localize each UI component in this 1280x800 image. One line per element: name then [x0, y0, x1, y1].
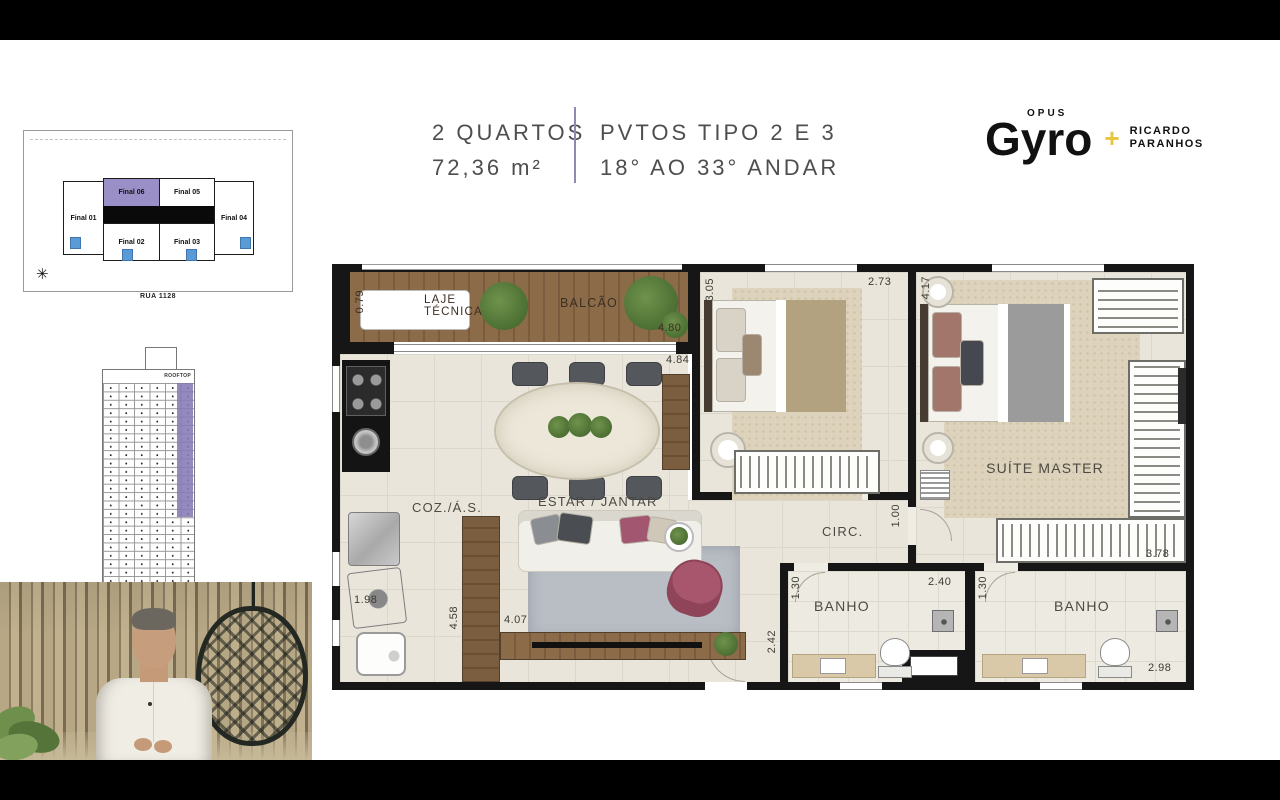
tv — [532, 642, 702, 648]
circ-label: CIRC. — [822, 524, 863, 539]
tv-partition — [462, 516, 500, 682]
keyplan-diagram: Final 01 Final 06 Final 05 Final 02 Fina… — [23, 130, 293, 292]
console-plant — [714, 632, 738, 656]
dim-circ-width: 1.00 — [890, 504, 902, 527]
dim-banho1-width: 2.40 — [928, 576, 951, 588]
bathroom2-shower-head — [1156, 610, 1178, 632]
fridge — [348, 512, 400, 566]
bathroom2-window — [1040, 682, 1082, 690]
unit-type-label: 2 QUARTOS — [432, 115, 585, 150]
partner-name-line1: RICARDO — [1130, 125, 1204, 138]
presenter-hand-left — [134, 738, 152, 751]
balcony-railing — [362, 264, 682, 270]
bed-blanket — [776, 300, 846, 412]
kitchen-sink — [352, 428, 380, 456]
estar-jantar-label: ESTAR / JANTAR — [538, 494, 658, 509]
bathroom1-door-opening — [794, 563, 828, 571]
presenter-video[interactable] — [0, 582, 312, 760]
balcony-marker-final03 — [186, 249, 197, 261]
dim-suite-width: 3.78 — [1146, 548, 1169, 560]
bathroom1-sink — [820, 658, 846, 674]
dim-suite-depth: 4.17 — [920, 276, 932, 299]
entrance-door-opening — [705, 682, 747, 690]
presenter-hand-right — [154, 740, 172, 753]
dim-living-width: 4.84 — [666, 354, 689, 366]
bathroom2-door-opening — [984, 563, 1018, 571]
lapel-mic — [148, 702, 152, 706]
bathroom2-toilet-tank — [1098, 666, 1132, 678]
keyplan-core — [103, 206, 215, 224]
wall-balcony-sill-left — [332, 342, 394, 354]
tower-highlight-column — [177, 383, 193, 517]
dining-chair — [512, 362, 548, 386]
banho1-label: BANHO — [814, 598, 870, 614]
service-window-2 — [332, 620, 340, 646]
logo-plus-icon: + — [1104, 123, 1119, 154]
dim-living-length: 4.07 — [504, 614, 527, 626]
suite-nightstand-bottom — [922, 432, 954, 464]
bathroom2-sink — [1022, 658, 1048, 674]
suite-deco-bench — [920, 470, 950, 500]
balcao-label: BALCÃO — [560, 296, 618, 310]
banho2-label: BANHO — [1054, 598, 1110, 614]
suite-accent-pillow — [960, 340, 984, 386]
wall-bedroom1-left — [692, 350, 700, 500]
floors-label: 18° AO 33° ANDAR — [600, 150, 839, 185]
sideboard — [662, 374, 690, 470]
egg-chair — [196, 606, 308, 746]
balcony-marker-final01 — [70, 237, 81, 249]
dim-banho2-depth: 1.30 — [977, 576, 989, 599]
service-window-1 — [332, 552, 340, 586]
tower-elevation-diagram: ROOFTOP — [100, 345, 197, 600]
wall-balcony-right-block — [688, 264, 700, 354]
dim-service-width: 1.98 — [354, 594, 377, 606]
kitchen-window — [332, 366, 340, 412]
wardrobe-hangers-pattern — [1134, 366, 1180, 512]
bed-headboard — [704, 300, 712, 412]
keyplan-unit-final06-highlighted: Final 06 — [103, 178, 160, 207]
wall-balcony-left-block — [332, 264, 350, 354]
suite-pillow — [932, 366, 962, 412]
keyplan-unit-final05: Final 05 — [159, 178, 215, 207]
header-right: PVTOS TIPO 2 E 3 18° AO 33° ANDAR — [600, 115, 839, 185]
bed-accent-pillow — [742, 334, 762, 376]
suite-pillow — [932, 312, 962, 358]
partner-name-line2: PARANHOS — [1130, 138, 1204, 151]
dining-chair — [626, 362, 662, 386]
dim-banho1-depth: 1.30 — [790, 576, 802, 599]
laje-tecnica-label: LAJE TÉCNICA — [424, 294, 506, 318]
dim-bedroom1-depth: 3.05 — [704, 278, 716, 301]
side-table-plant — [670, 527, 688, 545]
coz-label: COZ./Á.S. — [412, 500, 482, 515]
dim-balcony-width: 4.80 — [658, 322, 681, 334]
dim-banho1-outer: 2.42 — [766, 630, 778, 653]
site-boundary-line — [30, 139, 286, 140]
header-divider — [574, 107, 576, 183]
bedroom1-wardrobe — [734, 450, 880, 494]
suite-master-label: SUÍTE MASTER — [980, 460, 1110, 476]
bathroom1-toilet-bowl — [880, 638, 910, 666]
suite-wall-panel — [1178, 368, 1186, 424]
header-left: 2 QUARTOS 72,36 m² — [432, 115, 585, 185]
balcony-marker-final02 — [122, 249, 133, 261]
tower-rooftop-structure — [145, 347, 177, 371]
shaft-opening — [910, 656, 958, 676]
bathroom1-shower-head — [932, 610, 954, 632]
dim-banho2-width: 2.98 — [1148, 662, 1171, 674]
table-plant-3 — [590, 416, 612, 438]
dim-bedroom1-width: 2.73 — [868, 276, 891, 288]
bedroom1-bed — [704, 300, 846, 412]
suite-bed-headboard — [920, 304, 928, 422]
dim-kitchen-length: 4.58 — [448, 606, 460, 629]
wall-bathroom1-left — [780, 571, 788, 682]
brand-logo: OPUS Gyro + RICARDO PARANHOS — [985, 108, 1204, 159]
wall-right — [1186, 264, 1194, 690]
suite-window — [992, 264, 1104, 272]
logo-gyro-text: Gyro — [985, 119, 1092, 159]
floor-plan: LAJE TÉCNICA BALCÃO 0.79 4.80 COZ./Á.S. … — [332, 264, 1194, 690]
dim-balcony-depth: 0.79 — [354, 290, 366, 313]
rooftop-label: ROOFTOP — [103, 370, 194, 379]
suite-door-opening — [908, 507, 916, 545]
compass-icon: ✳ — [36, 265, 49, 283]
presenter-hair — [132, 608, 176, 630]
suite-blanket — [998, 304, 1070, 422]
laundry-tub — [356, 632, 406, 676]
table-plant-1 — [548, 416, 570, 438]
shirt-placket — [153, 682, 154, 742]
bathroom1-window — [840, 682, 882, 690]
presentation-slide: 2 QUARTOS 72,36 m² PVTOS TIPO 2 E 3 18° … — [0, 0, 1280, 800]
bedroom1-window — [765, 264, 857, 272]
area-label: 72,36 m² — [432, 150, 585, 185]
sofa-pillow-dark — [556, 512, 594, 545]
street-label: RUA 1128 — [23, 293, 293, 300]
suite-wardrobe-top — [1092, 278, 1184, 334]
wardrobe-hangers-pattern — [1098, 284, 1178, 328]
balcony-sliding-door — [394, 344, 676, 352]
bathroom2-toilet-bowl — [1100, 638, 1130, 666]
wardrobe-hangers-pattern — [740, 456, 874, 488]
table-plant-2 — [568, 413, 592, 437]
suite-bed — [920, 304, 1070, 422]
balcony-marker-final04 — [240, 237, 251, 249]
cooktop — [346, 366, 386, 416]
wall-bathroom-divider — [965, 571, 975, 682]
pavements-label: PVTOS TIPO 2 E 3 — [600, 115, 839, 150]
bathroom1-toilet-tank — [878, 666, 912, 678]
